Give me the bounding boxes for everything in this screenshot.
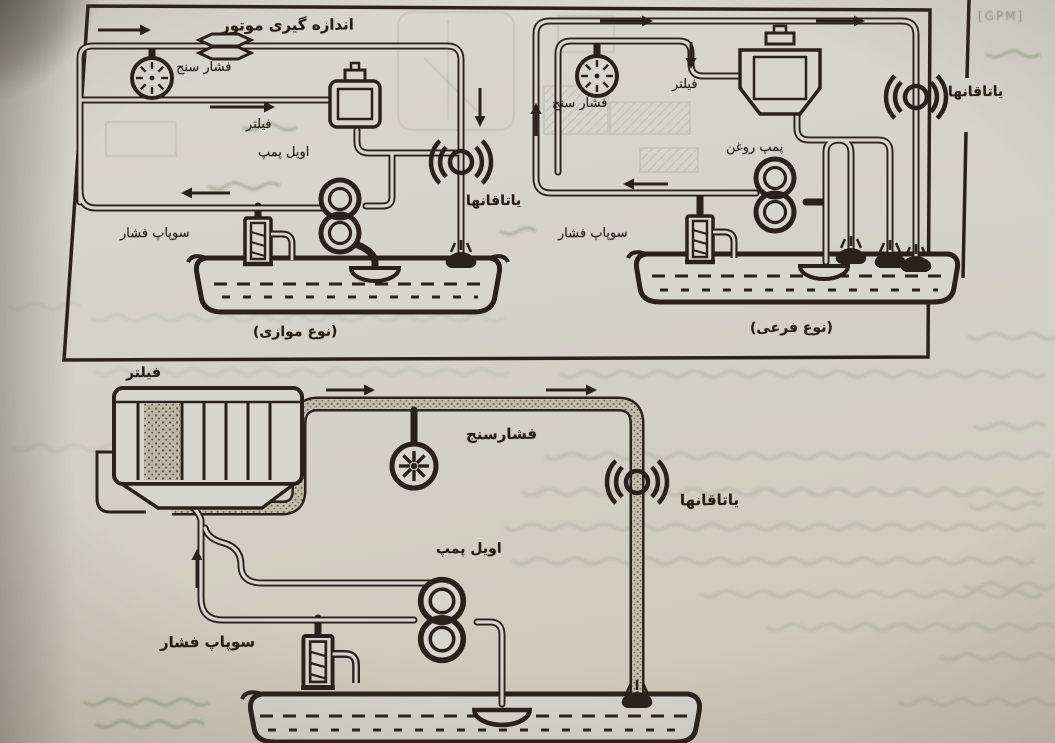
pickup-saucer [800,266,848,279]
parallel-figure-title: اندازه گیری موتور [200,15,375,35]
page-rule-line [963,0,969,278]
pressure-valve-icon [301,636,356,688]
pressure-gauge-label: فشارسنج [466,425,537,444]
faint-gpm-print: [GPM] [978,9,1024,23]
parallel-caption: (نوع موازی) [253,324,338,341]
oil-splash [836,236,867,264]
oil-pump-label: اویل پمپ [436,541,502,558]
oil-pump-icon [421,580,464,661]
pressure-valve-label: سوپاپ فشار [120,226,190,242]
pressure-gauge-icon [132,58,172,98]
filter-icon [740,26,820,114]
filter-label: فیلتر [126,365,161,381]
pickup-saucer [474,710,529,725]
pressure-gauge-icon [392,444,436,488]
engine-metering-icon [199,47,251,59]
filter-icon [330,63,380,127]
oil-splash [446,240,477,268]
bearings-label: یاتاقانها [466,193,521,209]
bearings-label: یاتاقانها [680,491,739,510]
filter-label: فیلتر [246,117,272,132]
oil-pump-icon [756,159,794,231]
bearings-label: یاتاقانها [948,84,1003,100]
oil-pump-label: اویل پمپ [258,145,310,160]
pressure-valve-label: سوپاپ فشار [160,633,255,652]
pressure-gauge-label: فشار سنج [176,60,232,75]
engine-metering-icon [199,34,251,46]
oil-pump-icon [321,180,359,252]
pickup-saucer [351,268,399,281]
oil-pump-label: پمپ روغن [726,140,783,155]
bypass-caption: (نوع فرعی) [750,320,833,337]
pressure-valve-label: سوپاپ فشار [558,226,628,242]
book-page-photo: اندازه گیری موتور فشار سنج فیلتر اویل پم… [0,0,1055,743]
filter-label: فیلتر [672,77,698,92]
pressure-gauge-icon [577,56,617,96]
filter-icon [97,388,302,512]
pressure-gauge-label: فشار سنج [552,96,608,111]
